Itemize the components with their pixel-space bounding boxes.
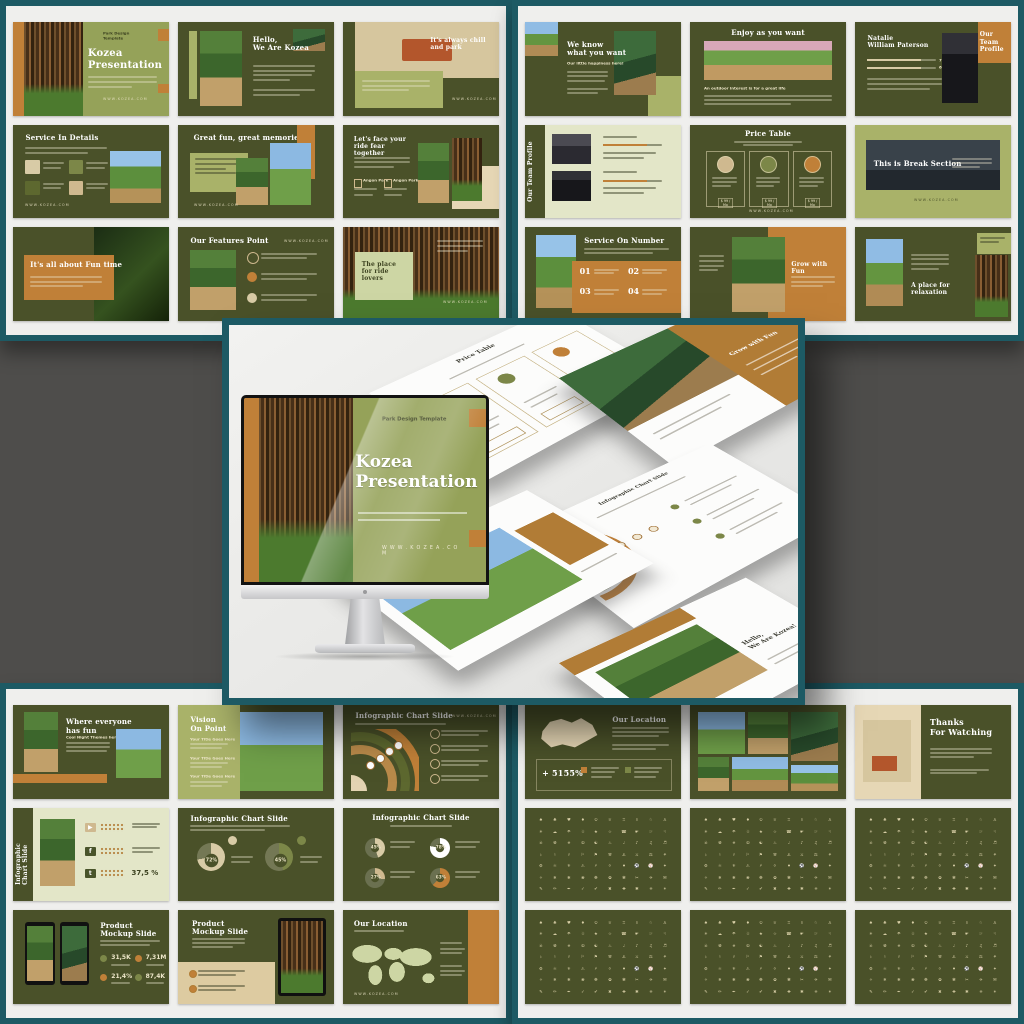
monitor-logo-dot — [363, 590, 367, 594]
glyph-icon: ☞ — [647, 828, 655, 835]
glyph-icon: ♭ — [537, 851, 545, 858]
glyph-icon: ✴ — [826, 988, 834, 995]
text-line — [612, 731, 668, 733]
glyph-icon: ⚘ — [661, 954, 669, 961]
glyph-icon: ☟ — [826, 931, 834, 938]
text-line — [88, 76, 157, 78]
glyph-icon: ⚛ — [551, 863, 559, 870]
list-item-label: Your Title Goes Here — [190, 737, 235, 742]
glyph-icon: ☟ — [826, 828, 834, 835]
slide-thumbnail-title: Park Design TemplateKozea PresentationWW… — [13, 22, 169, 116]
glyph-icon: ✒ — [730, 886, 738, 893]
glyph-icon: ♩ — [949, 840, 957, 847]
glyph-icon: ❀ — [578, 874, 586, 881]
glyph-icon: ✳ — [812, 886, 820, 893]
text-line — [362, 85, 431, 87]
glyph-icon: ♔ — [757, 919, 765, 926]
text-line — [190, 825, 290, 827]
slide-thumbnail-features: Our Features PointWWW.KOZEA.COM — [178, 227, 334, 321]
glyph-icon: ☠ — [702, 840, 710, 847]
text-line — [704, 99, 832, 101]
glyph-icon: ✚ — [949, 988, 957, 995]
glyph-icon: ☛ — [963, 828, 971, 835]
glyph-icon: ✳ — [647, 886, 655, 893]
glyph-icon: ☃ — [908, 931, 916, 938]
text-line — [195, 163, 239, 165]
glyph-icon: ☁ — [716, 828, 724, 835]
glyph-icon: ⚜ — [895, 965, 903, 972]
text-line — [253, 70, 315, 72]
glyph-icon: ♫ — [647, 840, 655, 847]
text-line — [198, 989, 235, 991]
glyph-icon: ⚫ — [784, 965, 792, 972]
accent-strip — [468, 910, 499, 1004]
glyph-icon: ☎ — [619, 931, 627, 938]
social-icon: f — [85, 847, 96, 856]
glyph-icon: ☂ — [895, 931, 903, 938]
glyph-icon: ⚫ — [949, 863, 957, 870]
glyph-icon: ⚜ — [730, 965, 738, 972]
text-line — [437, 245, 484, 247]
text-line — [791, 281, 835, 283]
text-line — [231, 856, 253, 858]
glyph-icon: ☣ — [565, 840, 573, 847]
glyph-icon: ☂ — [565, 828, 573, 835]
glyph-icon: ❄ — [551, 874, 559, 881]
glyph-icon: ✔ — [592, 988, 600, 995]
glyph-icon: ☢ — [716, 942, 724, 949]
glyph-icon: ♫ — [977, 840, 985, 847]
footer-url: WWW.KOZEA.COM — [25, 203, 70, 207]
glyph-icon: ❀ — [908, 874, 916, 881]
text-line — [253, 94, 300, 96]
text-line — [567, 88, 608, 90]
photo-park-path — [270, 143, 311, 205]
monitor-chin — [241, 585, 489, 599]
glyph-icon: ⚫ — [949, 965, 957, 972]
slide-thumbnail-tablet: Product Mockup Slide — [178, 910, 334, 1004]
glyph-icon: ♯ — [730, 954, 738, 961]
photo-garden-path — [24, 712, 58, 772]
text-line — [712, 181, 737, 183]
glyph-icon: ☃ — [578, 931, 586, 938]
glyph-icon: ♕ — [771, 817, 779, 824]
gauge-value: 27% — [371, 874, 379, 882]
slide-title: Infographic Chart Slide — [355, 712, 452, 720]
service-icon — [25, 181, 39, 195]
glyph-icon: ⚠ — [578, 863, 586, 870]
text-line — [440, 965, 462, 967]
text-line — [455, 876, 475, 878]
glyph-icon: ♠ — [867, 817, 875, 824]
accent-tab — [158, 84, 169, 93]
text-line — [253, 79, 290, 81]
text-line — [455, 841, 480, 843]
text-line — [390, 825, 452, 827]
glyph-icon: ⚜ — [895, 863, 903, 870]
glyph-icon: ☀ — [867, 828, 875, 835]
text-line — [911, 263, 948, 265]
slide-thumbnail-icons: ♠♣♥♦♔♕♖♗♘♙☀☁☂☃★☆☎☛☞☟☠☢☣☮☯♨♩♪♫♬♭♮♯⚐⚑⚒⚓⚔⚖⚘… — [690, 808, 846, 902]
slide-grid: Where everyone has funCool Night Themes … — [13, 705, 499, 1004]
glyph-icon: ❅ — [730, 977, 738, 984]
slide-title: A place for relaxation — [911, 282, 955, 296]
glyph-icon: ♙ — [991, 817, 999, 824]
glyph-icon: ⚒ — [606, 954, 614, 961]
photo-phone — [40, 819, 76, 886]
footer-url: WWW.KOZEA.COM — [452, 714, 497, 718]
text-line — [253, 74, 312, 76]
glyph-icon: ⚽ — [633, 863, 641, 870]
glyph-icon: ✂ — [963, 977, 971, 984]
glyph-icon: ♥ — [565, 919, 573, 926]
glyph-icon: ☞ — [977, 828, 985, 835]
slide-title: Infographic Chart Slide — [190, 815, 287, 823]
glyph-icon: ✏ — [716, 886, 724, 893]
price-icon — [760, 156, 777, 173]
glyph-icon: ✖ — [771, 988, 779, 995]
glyph-icon: ⚛ — [716, 863, 724, 870]
glyph-icon: ✈ — [647, 977, 655, 984]
photo-park — [536, 235, 577, 308]
photo-garden-arch — [190, 250, 235, 310]
glyph-icon: ✎ — [867, 988, 875, 995]
accent-strip — [189, 31, 197, 98]
glyph-icon: ✏ — [881, 886, 889, 893]
panel-top-right: We know what you wantOur little happines… — [512, 0, 1024, 341]
text-line — [390, 871, 415, 873]
glyph-icon: ♪ — [633, 840, 641, 847]
glyph-icon: ♠ — [537, 919, 545, 926]
text-line — [660, 407, 723, 440]
legend-icon — [625, 767, 631, 773]
glyph-icon: ♯ — [565, 954, 573, 961]
glyph-icon: ⚛ — [551, 965, 559, 972]
glyph-icon: ✂ — [633, 874, 641, 881]
slide-thumbnail-icons: ♠♣♥♦♔♕♖♗♘♙☀☁☂☃★☆☎☛☞☟☠☢☣☮☯♨♩♪♫♬♭♮♯⚐⚑⚒⚓⚔⚖⚘… — [525, 910, 681, 1004]
text-line — [231, 861, 250, 863]
glyph-icon: ❅ — [730, 874, 738, 881]
text-line — [642, 293, 662, 295]
slide-title: Great fun, great memories — [194, 134, 303, 142]
panel-bottom-right: Our Location+ 5155%Thanks For Watching♠♣… — [512, 683, 1024, 1024]
glyph-icon: ♠ — [537, 817, 545, 824]
list-item-label: Your Title Goes Here — [190, 774, 235, 779]
slide-title: Our Team Profile — [527, 140, 534, 202]
glyph-icon: ♗ — [963, 817, 971, 824]
service-icon — [25, 160, 39, 174]
glyph-icon: ♪ — [798, 840, 806, 847]
slide-title: Our Location — [612, 716, 666, 724]
glyph-icon: ⚓ — [949, 954, 957, 961]
photo-park — [110, 151, 161, 203]
slide-thumbnail-break: This is Break SectionWWW.KOZEA.COM — [855, 125, 1011, 219]
text-line — [684, 475, 737, 501]
glyph-icon: ♥ — [730, 817, 738, 824]
glyph-icon: ✦ — [991, 863, 999, 870]
photo-member — [552, 171, 591, 201]
glyph-icon: ☣ — [730, 942, 738, 949]
text-line — [354, 930, 404, 932]
glyph-icon: ✖ — [936, 886, 944, 893]
glyph-icon: ✎ — [867, 886, 875, 893]
glyph-icon: ⚠ — [743, 965, 751, 972]
text-line — [253, 89, 315, 91]
glyph-icon: ♯ — [565, 851, 573, 858]
glyph-icon: ✿ — [771, 874, 779, 881]
glyph-icon: ⚒ — [771, 954, 779, 961]
price-button: $ 99 / Mo — [805, 198, 820, 208]
slide-thumbnail-icons: ♠♣♥♦♔♕♖♗♘♙☀☁☂☃★☆☎☛☞☟☠☢☣☮☯♨♩♪♫♬♭♮♯⚐⚑⚒⚓⚔⚖⚘… — [525, 808, 681, 902]
glyph-icon: ♫ — [812, 840, 820, 847]
glyph-icon: ☛ — [798, 828, 806, 835]
text-line — [441, 760, 488, 762]
glyph-icon: ⚜ — [730, 863, 738, 870]
glyph-icon: ♯ — [895, 954, 903, 961]
slide-title: Vision On Point — [190, 716, 226, 733]
glyph-icon: ☠ — [867, 840, 875, 847]
glyph-icon: ✂ — [633, 977, 641, 984]
photo-panorama — [704, 41, 832, 80]
slide-grid: Our Location+ 5155%Thanks For Watching♠♣… — [525, 705, 1011, 1004]
glyph-icon: ☁ — [551, 828, 559, 835]
glyph-icon: ☃ — [578, 828, 586, 835]
glyph-icon: ✖ — [771, 886, 779, 893]
text-line — [756, 181, 781, 183]
glyph-icon: ✴ — [826, 886, 834, 893]
text-line — [66, 750, 107, 752]
glyph-icon: ♯ — [730, 851, 738, 858]
glyph-icon: ✳ — [977, 988, 985, 995]
slide-subtitle: Cool Night Themes here — [66, 735, 119, 740]
slide-thumbnail-icons: ♠♣♥♦♔♕♖♗♘♙☀☁☂☃★☆☎☛☞☟☠☢☣☮☯♨♩♪♫♬♭♮♯⚐⚑⚒⚓⚔⚖⚘… — [855, 808, 1011, 902]
text-line — [132, 847, 160, 849]
slide-thumbnail-place: The place for ride loversWWW.KOZEA.COM — [343, 227, 499, 321]
glyph-icon: ✚ — [619, 886, 627, 893]
glyph-icon: ⚘ — [661, 851, 669, 858]
glyph-icon: ☎ — [949, 931, 957, 938]
glyph-icon: ✏ — [716, 988, 724, 995]
glyph-icon: ⚽ — [633, 965, 641, 972]
glyph-icon: ♖ — [949, 919, 957, 926]
glyph-icon: ✒ — [895, 886, 903, 893]
text-line — [867, 88, 929, 90]
stat-icon — [135, 955, 142, 962]
glyph-icon: ♦ — [908, 919, 916, 926]
glyph-icon: ❁ — [757, 977, 765, 984]
glyph-icon: ♮ — [551, 954, 559, 961]
slide-thumbnail-numbers: Service On Number01020304 — [525, 227, 681, 321]
glyph-icon: ✈ — [647, 874, 655, 881]
text-line — [88, 81, 157, 83]
bar-fill — [867, 67, 920, 69]
slide-title: Infographic Chart Slide — [343, 814, 499, 822]
glyph-icon: ♥ — [565, 817, 573, 824]
glyph-icon: ☣ — [565, 942, 573, 949]
glyph-icon: ✏ — [551, 886, 559, 893]
slide-thumbnail-ride: Let's face your ride fear togetherAngon … — [343, 125, 499, 219]
glyph-icon: ♦ — [743, 817, 751, 824]
text-line — [699, 255, 724, 257]
glyph-icon: ♦ — [578, 919, 586, 926]
slide-thumbnail-team: Our Team ProfileNatalie William Paterson… — [855, 22, 1011, 116]
slide-title: Our Location — [354, 920, 408, 928]
imac-mockup: Park Design Template Kozea Presentation … — [241, 395, 489, 665]
glyph-icon: ❀ — [743, 977, 751, 984]
glyph-icon: ⚓ — [619, 851, 627, 858]
glyph-icon: ⚐ — [908, 851, 916, 858]
text-line — [198, 970, 245, 972]
glyph-icon: ♮ — [881, 851, 889, 858]
glyph-icon: ★ — [757, 931, 765, 938]
glyph-icon: ♬ — [826, 840, 834, 847]
glyph-icon: ⚓ — [949, 851, 957, 858]
text-line — [603, 192, 644, 194]
glyph-icon: ⚑ — [592, 851, 600, 858]
glyph-icon: ✈ — [812, 977, 820, 984]
glyph-icon: ⚖ — [647, 954, 655, 961]
glyph-icon: ★ — [757, 828, 765, 835]
glyph-icon: ❄ — [716, 874, 724, 881]
text-line — [567, 80, 604, 82]
glyph-icon: ❅ — [565, 977, 573, 984]
slide-title: Kozea Presentation — [88, 48, 162, 72]
glyph-icon: ❁ — [592, 977, 600, 984]
text-line — [354, 188, 377, 190]
glyph-icon: ⚐ — [743, 954, 751, 961]
text-line — [756, 185, 775, 187]
glyph-icon: ✦ — [661, 965, 669, 972]
glyph-icon: ♪ — [963, 942, 971, 949]
icon-set-grid: ♠♣♥♦♔♕♖♗♘♙☀☁☂☃★☆☎☛☞☟☠☢☣☮☯♨♩♪♫♬♭♮♯⚐⚑⚒⚓⚔⚖⚘… — [864, 814, 1001, 895]
slide-thumbnail-hello: Hello, We Are Kozea — [178, 22, 334, 116]
footer-url: WWW.KOZEA.COM — [284, 239, 329, 243]
glyph-icon: ☞ — [812, 931, 820, 938]
glyph-icon: ✴ — [991, 988, 999, 995]
glyph-icon: ⚜ — [565, 863, 573, 870]
glyph-icon: ✾ — [784, 977, 792, 984]
glyph-icon: ✧ — [867, 874, 875, 881]
accent-panel — [178, 962, 275, 1004]
slide-title: This is Break Section — [874, 160, 962, 168]
glyph-icon: ⚠ — [908, 965, 916, 972]
glyph-icon: ♨ — [936, 942, 944, 949]
glyph-icon: ☣ — [895, 942, 903, 949]
text-line — [594, 269, 619, 271]
glyph-icon: ★ — [592, 828, 600, 835]
text-line — [88, 86, 132, 88]
glyph-icon: ☛ — [963, 931, 971, 938]
gallery-photo — [698, 712, 745, 753]
glyph-icon: ☎ — [784, 828, 792, 835]
glyph-icon: ♕ — [606, 817, 614, 824]
glyph-icon: ♖ — [619, 919, 627, 926]
text-line — [642, 272, 662, 274]
checkbox-icon — [354, 179, 362, 188]
text-line — [952, 162, 993, 164]
glyph-icon: ☎ — [619, 828, 627, 835]
bench-detail — [872, 756, 897, 771]
slide-thumbnail-everyone: Where everyone has funCool Night Themes … — [13, 705, 169, 799]
glyph-icon: ⚙ — [702, 863, 710, 870]
list-bullet-icon — [430, 729, 440, 739]
number-label: 03 — [580, 286, 591, 296]
glyph-icon: ☠ — [537, 942, 545, 949]
glyph-icon: ♮ — [716, 954, 724, 961]
glyph-icon: ✳ — [647, 988, 655, 995]
phone-mockup — [25, 922, 55, 986]
glyph-icon: ♩ — [619, 942, 627, 949]
text-line — [190, 747, 221, 749]
glyph-icon: ☀ — [537, 828, 545, 835]
slide-kicker: Park Design Template — [103, 31, 146, 41]
glyph-icon: ♗ — [798, 919, 806, 926]
slide-title: Our Team Profile — [980, 31, 1010, 53]
photo-trail — [975, 255, 1008, 317]
glyph-icon: ✿ — [771, 977, 779, 984]
glyph-icon: ♩ — [784, 942, 792, 949]
glyph-icon: ♣ — [716, 919, 724, 926]
glyph-icon: ⚖ — [977, 851, 985, 858]
glyph-icon: ✓ — [743, 886, 751, 893]
glyph-icon: ♠ — [867, 919, 875, 926]
stat-value: 7,31M — [146, 954, 167, 961]
text-line — [591, 767, 619, 769]
price-icon — [717, 156, 734, 173]
glyph-icon: ✒ — [565, 886, 573, 893]
text-line — [132, 823, 160, 825]
glyph-icon: ♘ — [977, 919, 985, 926]
glyph-icon: ✱ — [798, 886, 806, 893]
slide-title: We know what you want — [567, 41, 626, 58]
slide-thumbnail-bench: It's always chill and parkWWW.KOZEA.COM — [343, 22, 499, 116]
slide-grid: We know what you wantOur little happines… — [525, 22, 1011, 321]
glyph-icon: ☢ — [716, 840, 724, 847]
glyph-icon: ☛ — [633, 828, 641, 835]
text-line — [132, 851, 154, 853]
slide-thumbnail-mapworld: Our LocationWWW.KOZEA.COM — [343, 910, 499, 1004]
slide-thumbnail-icons: ♠♣♥♦♔♕♖♗♘♙☀☁☂☃★☆☎☛☞☟☠☢☣☮☯♨♩♪♫♬♭♮♯⚐⚑⚒⚓⚔⚖⚘… — [855, 910, 1011, 1004]
glyph-icon: ✔ — [757, 886, 765, 893]
feature-bullet-icon — [247, 293, 257, 303]
photo-park-path — [866, 239, 903, 306]
glyph-icon: ⚓ — [784, 954, 792, 961]
glyph-icon: ✈ — [812, 874, 820, 881]
screen-glare — [244, 398, 486, 582]
glyph-icon: ✱ — [798, 988, 806, 995]
glyph-icon: ♙ — [826, 817, 834, 824]
feature-bullet-icon — [247, 252, 259, 264]
slide-grid: Park Design TemplateKozea PresentationWW… — [13, 22, 499, 321]
slide-title: Product Mockup Slide — [192, 920, 248, 937]
glyph-icon: ☆ — [936, 931, 944, 938]
text-line — [43, 167, 62, 169]
text-line — [100, 944, 150, 946]
text-line — [440, 974, 462, 976]
slide-subtitle: Our little happiness here! — [567, 61, 624, 66]
text-line — [261, 278, 308, 280]
stat-value: 31,5K — [111, 954, 130, 961]
glyph-icon: ☆ — [771, 828, 779, 835]
list-bullet-icon — [714, 532, 727, 539]
text-line — [734, 141, 803, 143]
glyph-icon: ⚖ — [812, 851, 820, 858]
glyph-icon: ✦ — [826, 965, 834, 972]
slide-thumbnail-icons: ♠♣♥♦♔♕♖♗♘♙☀☁☂☃★☆☎☛☞☟☠☢☣☮☯♨♩♪♫♬♭♮♯⚐⚑⚒⚓⚔⚖⚘… — [690, 910, 846, 1004]
gallery-photo — [791, 712, 838, 761]
text-line — [86, 187, 105, 189]
text-line — [594, 289, 619, 291]
